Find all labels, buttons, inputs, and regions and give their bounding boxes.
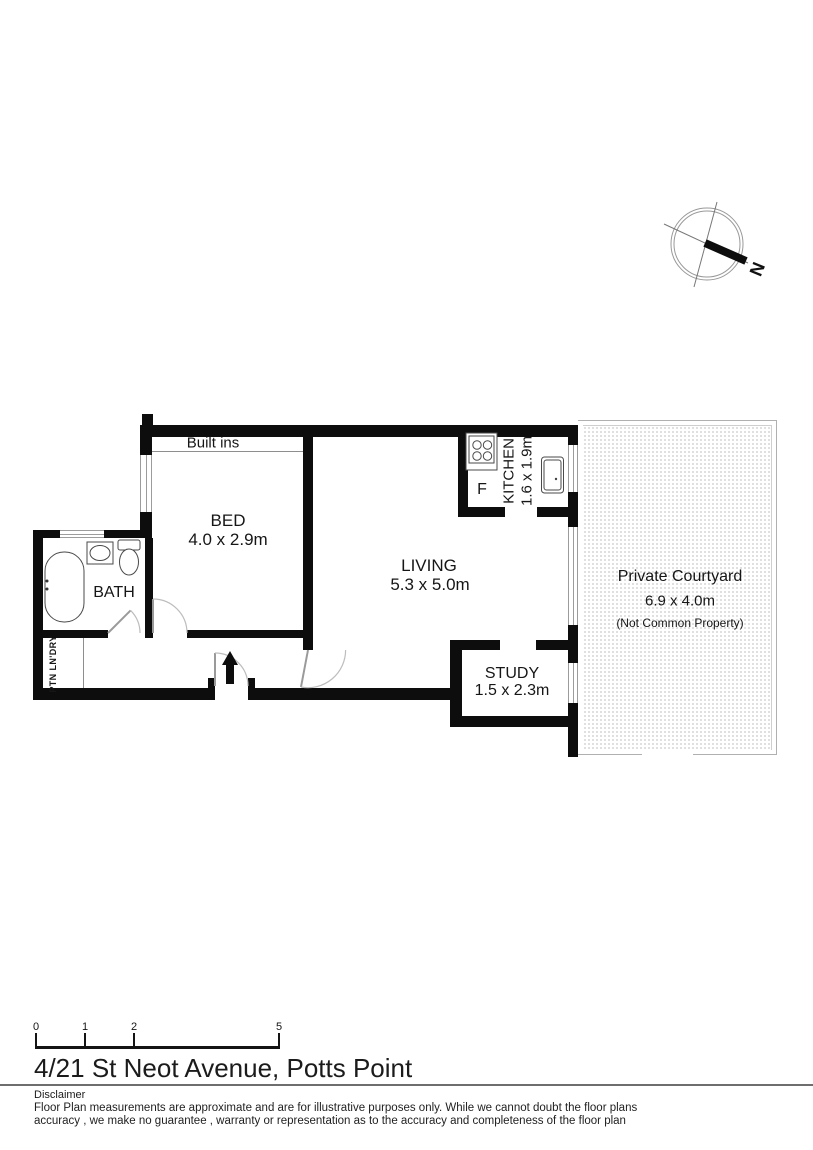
wall xyxy=(187,630,303,638)
window xyxy=(140,455,152,512)
room-dims-kitchen: 1.6 x 1.9m xyxy=(519,436,536,506)
wall xyxy=(33,530,60,538)
room-label-bed: BED xyxy=(211,511,246,531)
wall xyxy=(568,703,578,757)
door-jamb xyxy=(208,678,215,700)
courtyard-area xyxy=(583,425,772,750)
door-bedroom xyxy=(153,599,187,633)
courtyard-dims: 6.9 x 4.0m xyxy=(645,593,715,610)
room-dims-bed: 4.0 x 2.9m xyxy=(188,530,267,550)
wall xyxy=(140,437,152,455)
door-jamb xyxy=(248,678,255,700)
disclaimer-heading: Disclaimer xyxy=(34,1089,85,1101)
courtyard-border-bottom xyxy=(693,754,777,755)
scale-bar-line xyxy=(35,1046,280,1049)
wall xyxy=(303,437,313,650)
built-ins-label: Built ins xyxy=(187,435,240,452)
scale-tick-label: 1 xyxy=(82,1021,88,1033)
cooktop-icon xyxy=(466,433,497,470)
laundry-divider-line xyxy=(83,638,84,688)
entry-arrow-icon xyxy=(222,651,238,684)
wall xyxy=(33,688,208,700)
door-living xyxy=(301,650,346,688)
bathtub-icon xyxy=(45,552,84,622)
room-dims-living: 5.3 x 5.0m xyxy=(390,575,469,595)
window xyxy=(568,445,578,492)
wall xyxy=(140,512,152,530)
scale-bar-tick xyxy=(278,1033,280,1046)
room-label-study: STUDY xyxy=(485,665,539,683)
wall xyxy=(145,538,153,638)
vanity-sink-icon xyxy=(87,542,113,564)
wall xyxy=(450,640,500,650)
wall xyxy=(104,530,152,538)
wall xyxy=(458,437,468,515)
disclaimer-text: Floor Plan measurements are approximate … xyxy=(34,1102,637,1114)
wall xyxy=(33,538,43,700)
room-label-living: LIVING xyxy=(401,556,457,576)
room-dims-study: 1.5 x 2.3m xyxy=(475,682,550,700)
scale-bar-tick xyxy=(133,1033,135,1046)
wall xyxy=(142,414,153,425)
window xyxy=(568,527,578,625)
window xyxy=(568,663,578,703)
page-title: 4/21 St Neot Avenue, Potts Point xyxy=(34,1053,412,1084)
scale-tick-label: 0 xyxy=(33,1021,39,1033)
wall xyxy=(450,716,578,727)
room-label-bath: BATH xyxy=(93,584,134,602)
scale-tick-label: 2 xyxy=(131,1021,137,1033)
door-bath xyxy=(108,610,140,633)
wall xyxy=(450,640,462,727)
divider xyxy=(0,1084,813,1086)
courtyard-note: (Not Common Property) xyxy=(616,616,743,630)
scale-bar-tick xyxy=(84,1033,86,1046)
compass-north-label: N xyxy=(745,259,768,279)
courtyard-label: Private Courtyard xyxy=(618,568,743,586)
compass-icon: N xyxy=(664,202,769,287)
disclaimer-text: accuracy , we make no guarantee , warran… xyxy=(34,1115,626,1127)
room-label-kitchen: KITCHEN xyxy=(501,438,518,504)
scale-bar-tick xyxy=(35,1033,37,1046)
courtyard-border-bottom xyxy=(578,754,642,755)
scale-tick-label: 5 xyxy=(276,1021,282,1033)
wall xyxy=(458,507,505,517)
window xyxy=(60,530,104,538)
wall xyxy=(568,492,578,527)
kitchen-sink-icon xyxy=(542,457,564,493)
room-label-laundry: PTN LN'DRY xyxy=(48,635,58,692)
wall xyxy=(536,640,570,650)
toilet-icon xyxy=(118,540,140,575)
door-entry xyxy=(215,653,248,686)
wall xyxy=(568,437,578,445)
fridge-label: F xyxy=(477,481,487,499)
wall xyxy=(255,688,452,700)
floorplan-page: N xyxy=(0,0,813,1150)
